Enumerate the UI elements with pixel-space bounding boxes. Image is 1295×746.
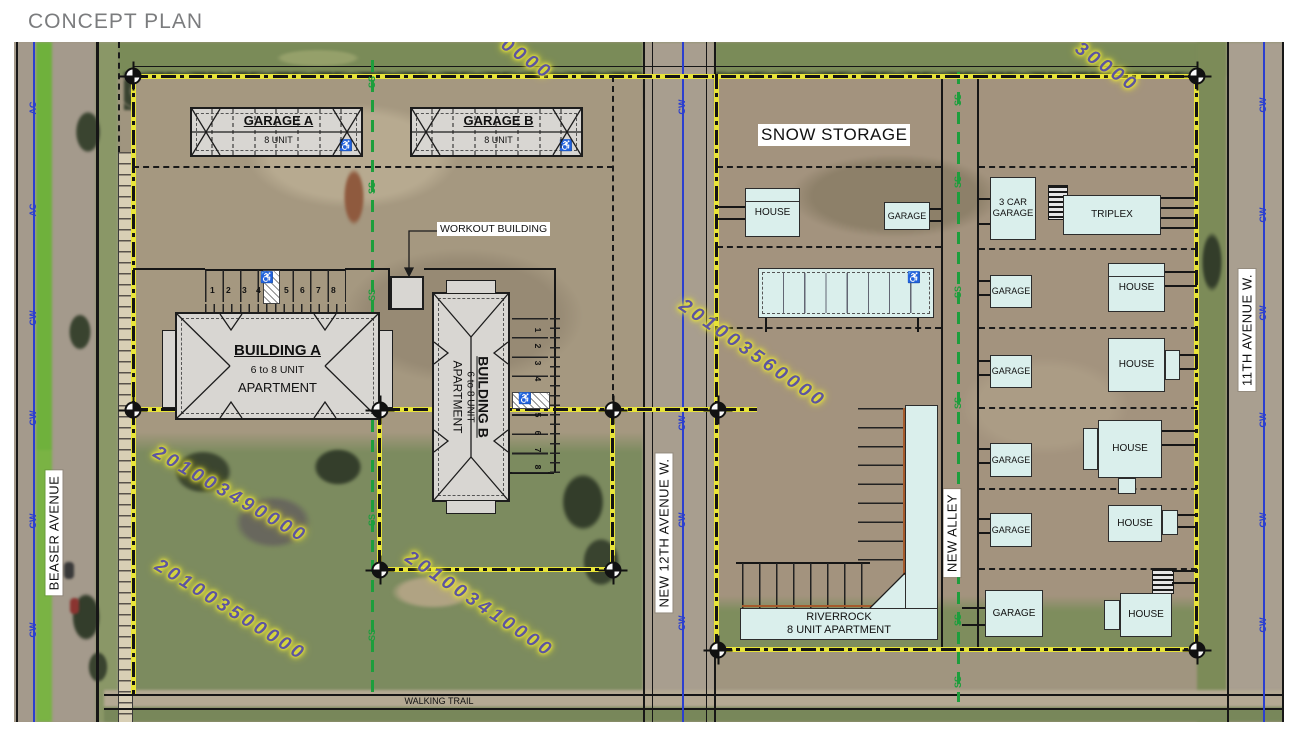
sewer-label: SS	[367, 289, 377, 301]
water-label: CW	[677, 616, 687, 631]
stub	[1161, 227, 1197, 229]
boundary-jog-vertical	[377, 410, 382, 570]
street-label-new-12th: NEW 12TH AVENUE W.	[656, 454, 673, 613]
stub	[717, 218, 745, 220]
building-b-units: 6 to 8 UNIT	[465, 356, 476, 438]
house-r4: HOUSE	[1098, 420, 1162, 478]
concept-plan-map: GARAGE A 8 UNIT ♿ GARAGE B 8 UNIT ♿ 1 2 …	[14, 42, 1284, 722]
sewer-label: SS	[953, 676, 963, 688]
garage-a-building: GARAGE A 8 UNIT ♿	[190, 107, 363, 157]
stub	[1161, 197, 1197, 199]
stall-number: 6	[300, 285, 305, 295]
stub	[977, 532, 990, 534]
monument-icon	[1189, 642, 1206, 659]
eastleft-lotline-3	[717, 327, 941, 329]
aerial-car-2	[70, 598, 79, 614]
house-label: HOUSE	[755, 207, 791, 219]
building-a-use: APARTMENT	[210, 380, 345, 395]
water-label: CW	[28, 411, 38, 426]
drive-line-1	[133, 268, 205, 270]
water-label: CW	[1258, 208, 1268, 223]
water-label: CW	[28, 311, 38, 326]
house-r4-wing-left	[1083, 428, 1098, 470]
house-label: HOUSE	[1112, 443, 1148, 455]
boundary-east-parcel-south	[717, 647, 1197, 652]
garage-a-label: GARAGE A	[222, 113, 335, 128]
alley-east-edge	[977, 76, 979, 650]
building-a-units: 6 to 8 UNIT	[210, 364, 345, 376]
sewer-label: SS	[367, 514, 377, 526]
stall-number: 1	[210, 285, 215, 295]
house-label: HOUSE	[1119, 282, 1155, 294]
riverrock-east-bar	[905, 405, 938, 640]
stub	[977, 518, 990, 520]
monument-icon	[710, 402, 727, 419]
aerial-east-boulevard	[1197, 42, 1227, 722]
sewer-label: SS	[367, 182, 377, 194]
stub	[1178, 514, 1197, 516]
aerial-beaser-grass-median	[36, 42, 52, 722]
garage-r2: GARAGE	[990, 275, 1032, 308]
stall-number: 3	[242, 285, 247, 295]
garage-b-label: GARAGE B	[442, 113, 555, 128]
stall-number: 6	[533, 431, 543, 436]
stub	[930, 220, 941, 222]
eight-car-garage-stall-dividers	[763, 273, 929, 313]
stub	[977, 448, 990, 450]
parking-b-curb-ticks	[550, 318, 560, 473]
water-label: CW	[677, 100, 687, 115]
building-b-label-block: BUILDING B 6 to 8 UNIT APARTMENT	[451, 356, 492, 438]
eastright-lotline-4	[979, 407, 1197, 409]
sewer-label: SS	[953, 176, 963, 188]
sewer-label: SS	[953, 397, 963, 409]
sewer-label: SS	[953, 614, 963, 626]
boundary-east-parcel-west	[714, 74, 719, 650]
eight-car-stub-2	[917, 318, 919, 332]
stub	[1172, 570, 1197, 572]
eastright-lotline-1	[979, 166, 1197, 168]
stub	[1180, 354, 1197, 356]
stub	[1172, 582, 1197, 584]
building-b-name: BUILDING B	[476, 356, 492, 438]
water-label: CW	[677, 416, 687, 431]
stall-number: 7	[533, 448, 543, 453]
parking-a-accessible-icon: ♿	[260, 273, 274, 284]
house-r3-wing	[1165, 350, 1180, 380]
street-label-11th: 11TH AVENUE W.	[1239, 269, 1256, 391]
eight-car-garage: 8 CAR GARAGE ♿	[758, 268, 934, 318]
stub	[930, 208, 941, 210]
building-b-north-wing	[446, 280, 496, 294]
riverrock-parking-south	[742, 563, 870, 608]
drive-line-4	[424, 268, 554, 270]
garage-label: GARAGE	[992, 525, 1031, 535]
building-a-east-wing	[379, 330, 393, 408]
riverrock-curb-west	[903, 408, 905, 575]
aerial-beaser-trees	[58, 42, 118, 722]
monument-icon	[372, 402, 389, 419]
building-a-west-wing	[162, 330, 176, 408]
page-title: CONCEPT PLAN	[28, 10, 203, 34]
12th-ave-edge-1	[643, 42, 645, 722]
snow-storage-label: SNOW STORAGE	[758, 124, 910, 146]
eastleft-lotline-2	[717, 246, 941, 248]
garage-label: GARAGE	[992, 455, 1031, 465]
house-label: HOUSE	[1128, 609, 1164, 621]
workout-building	[390, 276, 424, 310]
stall-number: 2	[533, 344, 543, 349]
garage-r6: GARAGE	[985, 590, 1043, 637]
11th-ave-west-curb	[1227, 42, 1229, 722]
aerial-11th-road	[1227, 42, 1284, 722]
stub	[977, 294, 990, 296]
riverrock-units: 8 UNIT APARTMENT	[787, 624, 891, 637]
street-label-beaser: BEASER AVENUE	[46, 471, 63, 596]
beaser-east-curb-line	[96, 42, 99, 722]
sewer-label: SS	[367, 629, 377, 641]
water-label: CW	[677, 513, 687, 528]
building-a-name: BUILDING A	[210, 342, 345, 359]
garage-b-units: 8 UNIT	[442, 135, 555, 145]
sewer-label: SS	[953, 94, 963, 106]
monument-icon	[1189, 68, 1206, 85]
12th-ave-edge-3	[706, 42, 707, 722]
eight-car-garage-accessible-icon: ♿	[907, 273, 921, 284]
monument-icon	[125, 402, 142, 419]
boundary-east-parcel-east	[1194, 74, 1199, 650]
monument-icon	[125, 68, 142, 85]
house-label: HOUSE	[1119, 359, 1155, 371]
stub	[962, 607, 985, 609]
garage-r3: GARAGE	[990, 355, 1032, 388]
west-parcel-east-lotline	[612, 76, 614, 410]
garage-label: GARAGE	[992, 366, 1031, 376]
house-r5-wing	[1162, 510, 1178, 535]
triplex-label: TRIPLEX	[1091, 209, 1133, 221]
monument-icon	[605, 402, 622, 419]
parking-b-accessible-icon: ♿	[518, 394, 532, 405]
stub	[1162, 430, 1197, 432]
house-r2: HOUSE	[1108, 263, 1165, 312]
house-r5: HOUSE	[1108, 505, 1162, 542]
eastright-lotline-2	[979, 248, 1197, 250]
stall-number: 3	[533, 361, 543, 366]
boundary-north	[133, 74, 1197, 79]
11th-ave-east-curb	[1282, 42, 1284, 722]
triplex-building: TRIPLEX	[1063, 195, 1161, 235]
water-label: CW	[1258, 413, 1268, 428]
stall-number: 2	[226, 285, 231, 295]
riverrock-curb-north	[742, 605, 872, 607]
stub	[1180, 368, 1197, 370]
house-r6: HOUSE	[1120, 593, 1172, 637]
stub	[962, 624, 985, 626]
stub	[1161, 217, 1197, 219]
stall-number: 1	[533, 328, 543, 333]
walking-trail-south-line	[104, 708, 1284, 710]
stall-number: 5	[284, 285, 289, 295]
stub	[1165, 285, 1197, 287]
three-car-garage: 3 CAR GARAGE	[990, 177, 1036, 240]
garage-a-units: 8 UNIT	[222, 135, 335, 145]
stub	[977, 198, 990, 200]
riverrock-parking-west	[858, 408, 905, 578]
water-label: CW	[1258, 98, 1268, 113]
house-r4-tab	[1118, 478, 1136, 494]
stall-number: 7	[316, 285, 321, 295]
stub	[1165, 271, 1197, 273]
sewer-label: SS	[953, 286, 963, 298]
eight-car-stub-1	[765, 318, 767, 332]
stall-number: 8	[533, 465, 543, 470]
stub	[717, 206, 745, 208]
riverrock-name: RIVERROCK	[806, 611, 871, 624]
eastleft-lotline-1	[717, 166, 941, 168]
stub	[977, 223, 990, 225]
stall-number: 8	[331, 285, 336, 295]
water-label: CW	[28, 514, 38, 529]
monument-icon	[605, 562, 622, 579]
water-label: CW	[1258, 306, 1268, 321]
garage-b-accessible-icon: ♿	[559, 141, 573, 152]
garage-label: GARAGE	[992, 286, 1031, 296]
stub	[1162, 444, 1197, 446]
building-b-south-wing	[446, 500, 496, 514]
stub	[1161, 207, 1197, 209]
eastright-lotline-3	[979, 327, 1197, 329]
house-r6-wing	[1104, 600, 1120, 630]
water-line-beaser	[33, 42, 35, 722]
sewer-line-alley	[957, 72, 960, 702]
drive-line-2	[345, 268, 388, 270]
house-label: HOUSE	[1117, 518, 1153, 530]
water-label: CW	[1258, 513, 1268, 528]
beaser-west-edge-line	[16, 42, 18, 722]
three-car-garage-label: 3 CAR GARAGE	[993, 198, 1034, 220]
garage-label: GARAGE	[993, 608, 1036, 620]
monument-icon	[710, 642, 727, 659]
garage-r5: GARAGE	[990, 513, 1032, 547]
garage-b-building: GARAGE B 8 UNIT ♿	[410, 107, 583, 157]
walking-trail-north-line	[104, 694, 1284, 696]
stub	[977, 374, 990, 376]
stub	[977, 280, 990, 282]
water-label: AC	[28, 204, 38, 217]
garage-lot1: GARAGE	[884, 202, 930, 230]
treeline-edge	[133, 66, 1197, 67]
boundary-jog-east	[610, 410, 615, 570]
garage-a-accessible-icon: ♿	[339, 141, 353, 152]
house-lot1-porch-line	[746, 201, 799, 202]
water-label: CW	[1258, 618, 1268, 633]
beaser-sidewalk-dash	[118, 42, 120, 152]
garage-label: GARAGE	[888, 211, 927, 221]
west-lotline-1	[133, 166, 613, 168]
stub	[1178, 526, 1197, 528]
street-label-new-alley: NEW ALLEY	[944, 489, 961, 577]
walking-trail-label: WALKING TRAIL	[384, 696, 494, 706]
house-lot1: HOUSE	[745, 188, 800, 237]
stall-number: 5	[533, 413, 543, 418]
riverrock-south-bar: RIVERROCK 8 UNIT APARTMENT	[740, 608, 938, 640]
stub	[977, 462, 990, 464]
building-b-use: APARTMENT	[451, 356, 465, 438]
sewer-label: SS	[367, 76, 377, 88]
stub	[977, 360, 990, 362]
12th-ave-edge-2	[652, 42, 653, 722]
workout-building-label: WORKOUT BUILDING	[437, 222, 550, 236]
water-label: CW	[28, 623, 38, 638]
aerial-car-1	[64, 562, 74, 579]
eastright-lotline-5	[979, 488, 1197, 490]
house-r2-porch-line	[1109, 276, 1164, 277]
garage-r4: GARAGE	[990, 443, 1032, 477]
water-label: AC	[28, 102, 38, 115]
house-r6-stairs	[1152, 568, 1174, 594]
stall-number: 4	[256, 285, 261, 295]
stall-number: 4	[533, 377, 543, 382]
monument-icon	[372, 562, 389, 579]
house-r3: HOUSE	[1108, 338, 1165, 392]
